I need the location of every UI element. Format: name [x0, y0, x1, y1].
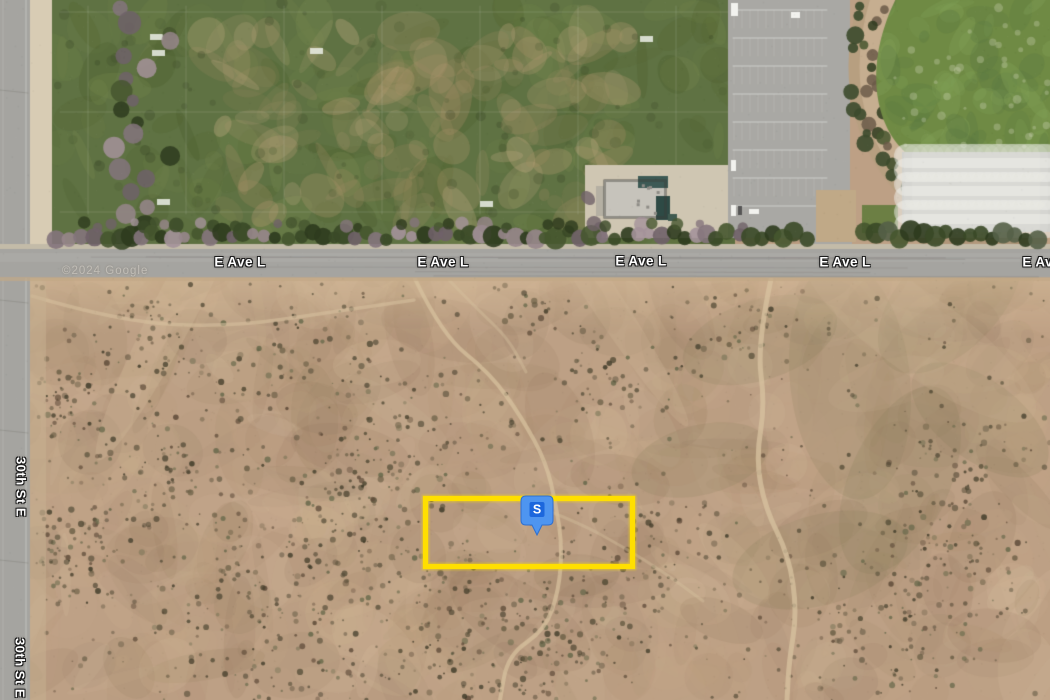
pin-letter: S	[533, 503, 541, 517]
street-label-30th-st-e: 30th St E	[13, 638, 28, 698]
road-label-e-ave-l: E Ave L	[819, 255, 870, 270]
satellite-imagery	[0, 0, 1050, 700]
road-label-e-ave-l: E Ave L	[615, 254, 666, 269]
satellite-map[interactable]: E Ave LE Ave LE Ave LE Ave LE Ave L30th …	[0, 0, 1050, 700]
street-label-30th-st-e: 30th St E	[14, 457, 29, 517]
road-label-e-ave-l: E Ave L	[214, 255, 265, 270]
road-label-e-ave-l: E Ave L	[1022, 255, 1050, 270]
pin-icon: S	[520, 494, 554, 538]
map-attribution: ©2024 Google	[62, 265, 148, 277]
road-label-e-ave-l: E Ave L	[417, 255, 468, 270]
property-pin[interactable]: S	[520, 494, 554, 538]
